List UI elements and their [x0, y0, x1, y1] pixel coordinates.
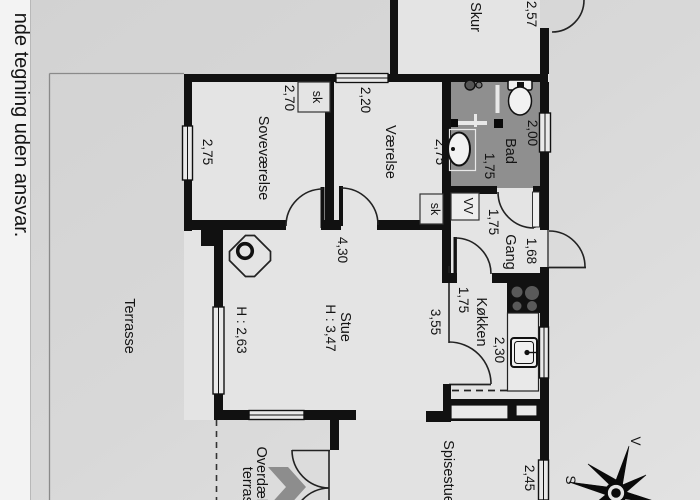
- svg-text:3,55: 3,55: [428, 309, 443, 335]
- svg-text:VV: VV: [461, 198, 475, 215]
- svg-text:2,45: 2,45: [522, 465, 537, 491]
- svg-text:2,75: 2,75: [433, 139, 448, 165]
- svg-text:Terrasse: Terrasse: [121, 298, 137, 354]
- svg-text:H : 3,47: H : 3,47: [323, 304, 338, 351]
- svg-text:Gang: Gang: [502, 234, 518, 269]
- svg-text:Skur: Skur: [467, 2, 483, 32]
- svg-text:Bad: Bad: [502, 138, 518, 164]
- svg-text:Værelse: Værelse: [382, 125, 398, 179]
- svg-text:nde tegning uden ansvar.: nde tegning uden ansvar.: [10, 13, 32, 238]
- svg-text:1,75: 1,75: [456, 287, 471, 313]
- svg-text:1,75: 1,75: [486, 209, 501, 235]
- svg-text:2,30: 2,30: [492, 337, 507, 363]
- svg-text:V: V: [628, 436, 643, 445]
- svg-text:2,20: 2,20: [358, 87, 373, 113]
- svg-text:Stue: Stue: [337, 312, 353, 342]
- svg-text:sk: sk: [310, 91, 324, 104]
- svg-text:2,57: 2,57: [524, 1, 539, 27]
- svg-text:4,30: 4,30: [335, 237, 350, 263]
- svg-text:2,00: 2,00: [525, 120, 540, 146]
- svg-text:2,70: 2,70: [282, 85, 297, 111]
- svg-text:Soveværelse: Soveværelse: [255, 116, 271, 201]
- svg-text:1,68: 1,68: [524, 238, 539, 264]
- svg-text:Køkken: Køkken: [473, 297, 489, 346]
- svg-text:terrasse: terrasse: [239, 467, 255, 500]
- svg-text:S: S: [563, 475, 578, 484]
- svg-text:1,75: 1,75: [482, 153, 497, 179]
- svg-text:sk: sk: [428, 203, 442, 216]
- svg-text:2,75: 2,75: [200, 139, 215, 165]
- svg-text:Spisestue: Spisestue: [440, 440, 456, 500]
- svg-text:H : 2,63: H : 2,63: [234, 306, 249, 353]
